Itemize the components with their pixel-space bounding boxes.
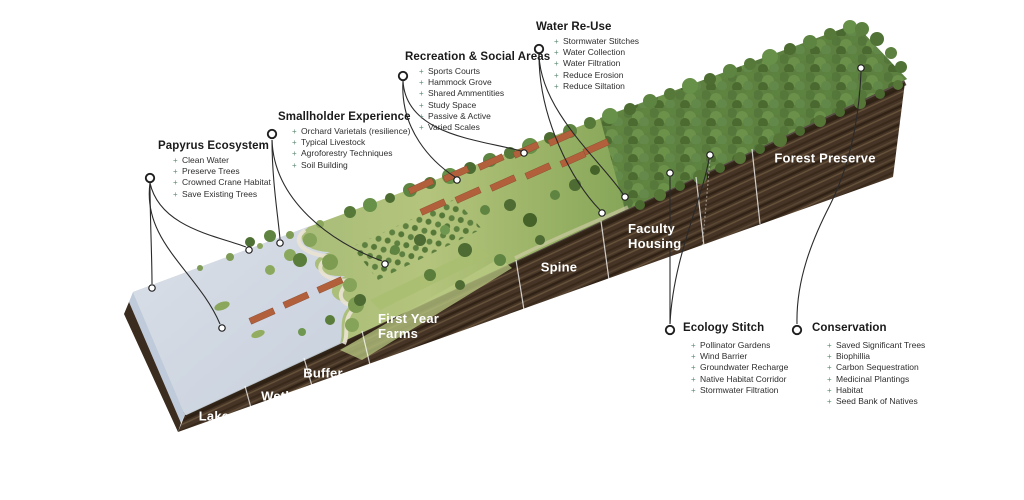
section-label-buffer: Buffer [303, 366, 342, 381]
anchor-dot-icon [858, 65, 864, 71]
bullet-marker-icon: + [691, 385, 700, 396]
callout-items: +Stormwater Stitches+Water Collection+Wa… [554, 36, 639, 92]
bullet-marker-icon: + [173, 177, 182, 188]
bullet-item: +Wind Barrier [691, 351, 788, 362]
bullet-marker-icon: + [554, 81, 563, 92]
bullet-marker-icon: + [292, 160, 301, 171]
bullet-text: Shared Ammentities [428, 88, 504, 99]
callout-items: +Pollinator Gardens+Wind Barrier+Groundw… [691, 340, 788, 396]
section-label-spine: Spine [541, 260, 577, 275]
bullet-marker-icon: + [691, 374, 700, 385]
bullet-item: +Pollinator Gardens [691, 340, 788, 351]
bullet-marker-icon: + [419, 66, 428, 77]
bullet-marker-icon: + [554, 47, 563, 58]
bullet-marker-icon: + [827, 340, 836, 351]
bullet-marker-icon: + [691, 351, 700, 362]
callout-title: Ecology Stitch [683, 322, 788, 334]
section-label-wetland: Wetland [261, 389, 313, 404]
bullet-marker-icon: + [173, 155, 182, 166]
bullet-item: +Typical Livestock [292, 137, 411, 148]
bullet-text: Typical Livestock [301, 137, 365, 148]
callout-recreation-social-areas: Recreation & Social Areas +Sports Courts… [387, 51, 550, 133]
anchor-dot-icon [622, 194, 628, 200]
section-label-lake: Lake [199, 409, 229, 424]
bullet-text: Wind Barrier [700, 351, 747, 362]
bullet-text: Clean Water [182, 155, 229, 166]
bullet-item: +Water Filtration [554, 58, 639, 69]
callout-water-re-use: Water Re-Use +Stormwater Stitches+Water … [530, 21, 639, 92]
bullet-text: Medicinal Plantings [836, 374, 909, 385]
bullet-marker-icon: + [419, 111, 428, 122]
bullet-text: Water Filtration [563, 58, 620, 69]
callout-title: Water Re-Use [536, 21, 639, 33]
bullet-text: Soil Building [301, 160, 348, 171]
bullet-text: Native Habitat Corridor [700, 374, 786, 385]
bullet-text: Crowned Crane Habitat [182, 177, 271, 188]
anchor-dot-icon [521, 150, 527, 156]
bullet-text: Reduce Siltation [563, 81, 625, 92]
anchor-dot-icon [149, 285, 155, 291]
bullet-text: Varied Scales [428, 122, 480, 133]
callout-title: Conservation [812, 322, 925, 334]
bullet-marker-icon: + [827, 385, 836, 396]
bullet-marker-icon: + [419, 122, 428, 133]
anchor-dot-icon [246, 247, 252, 253]
bullet-marker-icon: + [691, 340, 700, 351]
bullet-item: +Crowned Crane Habitat [173, 177, 271, 188]
section-label-faculty-housing: Faculty Housing [628, 221, 698, 251]
bullet-text: Stormwater Filtration [700, 385, 778, 396]
bullet-item: +Save Existing Trees [173, 189, 271, 200]
callout-title: Papyrus Ecosystem [158, 140, 271, 152]
bullet-item: +Passive & Active [419, 111, 550, 122]
bullet-item: +Medicinal Plantings [827, 374, 925, 385]
bullet-marker-icon: + [419, 77, 428, 88]
callout-title: Recreation & Social Areas [405, 51, 550, 63]
bullet-marker-icon: + [827, 374, 836, 385]
bullet-marker-icon: + [691, 362, 700, 373]
bullet-text: Hammock Grove [428, 77, 492, 88]
anchor-dot-icon [277, 240, 283, 246]
bullet-text: Preserve Trees [182, 166, 240, 177]
bullet-item: +Saved Significant Trees [827, 340, 925, 351]
bullet-marker-icon: + [419, 88, 428, 99]
bullet-item: +Native Habitat Corridor [691, 374, 788, 385]
anchor-dot-icon [219, 325, 225, 331]
bullet-marker-icon: + [554, 70, 563, 81]
bullet-text: Reduce Erosion [563, 70, 623, 81]
bullet-marker-icon: + [292, 126, 301, 137]
bullet-text: Carbon Sequestration [836, 362, 919, 373]
bullet-item: +Soil Building [292, 160, 411, 171]
bullet-marker-icon: + [173, 189, 182, 200]
bullet-text: Water Collection [563, 47, 625, 58]
bullet-text: Pollinator Gardens [700, 340, 770, 351]
bullet-marker-icon: + [827, 362, 836, 373]
bullet-item: +Preserve Trees [173, 166, 271, 177]
callout-papyrus-ecosystem: Papyrus Ecosystem +Clean Water+Preserve … [140, 140, 271, 200]
anchor-dot-icon [454, 177, 460, 183]
site-section-diagram: Papyrus Ecosystem +Clean Water+Preserve … [0, 0, 1024, 500]
bullet-item: +Study Space [419, 100, 550, 111]
bullet-marker-icon: + [554, 36, 563, 47]
bullet-item: +Water Collection [554, 47, 639, 58]
anchor-dot-icon [382, 261, 388, 267]
bullet-text: Groundwater Recharge [700, 362, 788, 373]
bullet-marker-icon: + [827, 396, 836, 407]
section-label-first-year-farms: First Year Farms [378, 311, 462, 341]
bullet-text: Study Space [428, 100, 476, 111]
callout-ecology-stitch: Ecology Stitch +Pollinator Gardens+Wind … [661, 322, 788, 396]
bullet-marker-icon: + [292, 148, 301, 159]
callout-conservation: Conservation +Saved Significant Trees+Bi… [789, 322, 925, 407]
bullet-text: Stormwater Stitches [563, 36, 639, 47]
bullet-text: Saved Significant Trees [836, 340, 925, 351]
bullet-item: +Biophillia [827, 351, 925, 362]
bullet-item: +Stormwater Stitches [554, 36, 639, 47]
anchor-dot-icon [667, 170, 673, 176]
callout-items: +Saved Significant Trees+Biophillia+Carb… [827, 340, 925, 407]
anchor-dot-icon [599, 210, 605, 216]
bullet-item: +Reduce Siltation [554, 81, 639, 92]
bullet-item: +Stormwater Filtration [691, 385, 788, 396]
bullet-marker-icon: + [292, 137, 301, 148]
bullet-marker-icon: + [827, 351, 836, 362]
bullet-text: Agroforestry Techniques [301, 148, 393, 159]
callout-items: +Clean Water+Preserve Trees+Crowned Cran… [173, 155, 271, 200]
bullet-item: +Agroforestry Techniques [292, 148, 411, 159]
bullet-item: +Varied Scales [419, 122, 550, 133]
anchor-dot-icon [707, 152, 713, 158]
bullet-item: +Seed Bank of Natives [827, 396, 925, 407]
bullet-text: Passive & Active [428, 111, 491, 122]
bullet-text: Habitat [836, 385, 863, 396]
bullet-item: +Clean Water [173, 155, 271, 166]
bullet-marker-icon: + [419, 100, 428, 111]
bullet-item: +Carbon Sequestration [827, 362, 925, 373]
bullet-marker-icon: + [554, 58, 563, 69]
bullet-text: Biophillia [836, 351, 870, 362]
bullet-marker-icon: + [173, 166, 182, 177]
bullet-text: Sports Courts [428, 66, 480, 77]
bullet-item: +Reduce Erosion [554, 70, 639, 81]
bullet-item: +Habitat [827, 385, 925, 396]
bullet-item: +Groundwater Recharge [691, 362, 788, 373]
bullet-text: Save Existing Trees [182, 189, 257, 200]
section-label-forest-preserve: Forest Preserve [774, 151, 875, 166]
bullet-text: Seed Bank of Natives [836, 396, 918, 407]
